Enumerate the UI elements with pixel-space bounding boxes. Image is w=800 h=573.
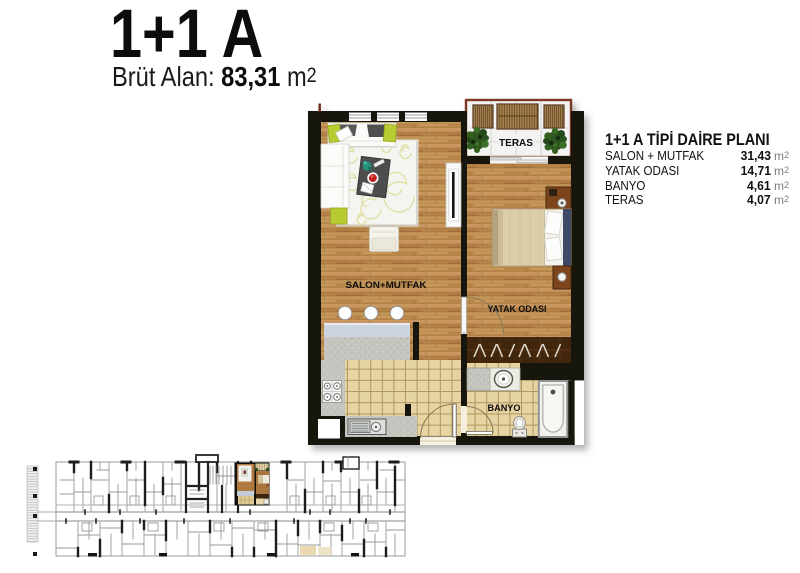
svg-text:YATAK ODASI: YATAK ODASI bbox=[488, 304, 547, 315]
svg-text:BANYO: BANYO bbox=[488, 403, 521, 413]
svg-text:TERAS: TERAS bbox=[499, 137, 533, 149]
svg-text:SALON+MUTFAK: SALON+MUTFAK bbox=[346, 280, 427, 291]
